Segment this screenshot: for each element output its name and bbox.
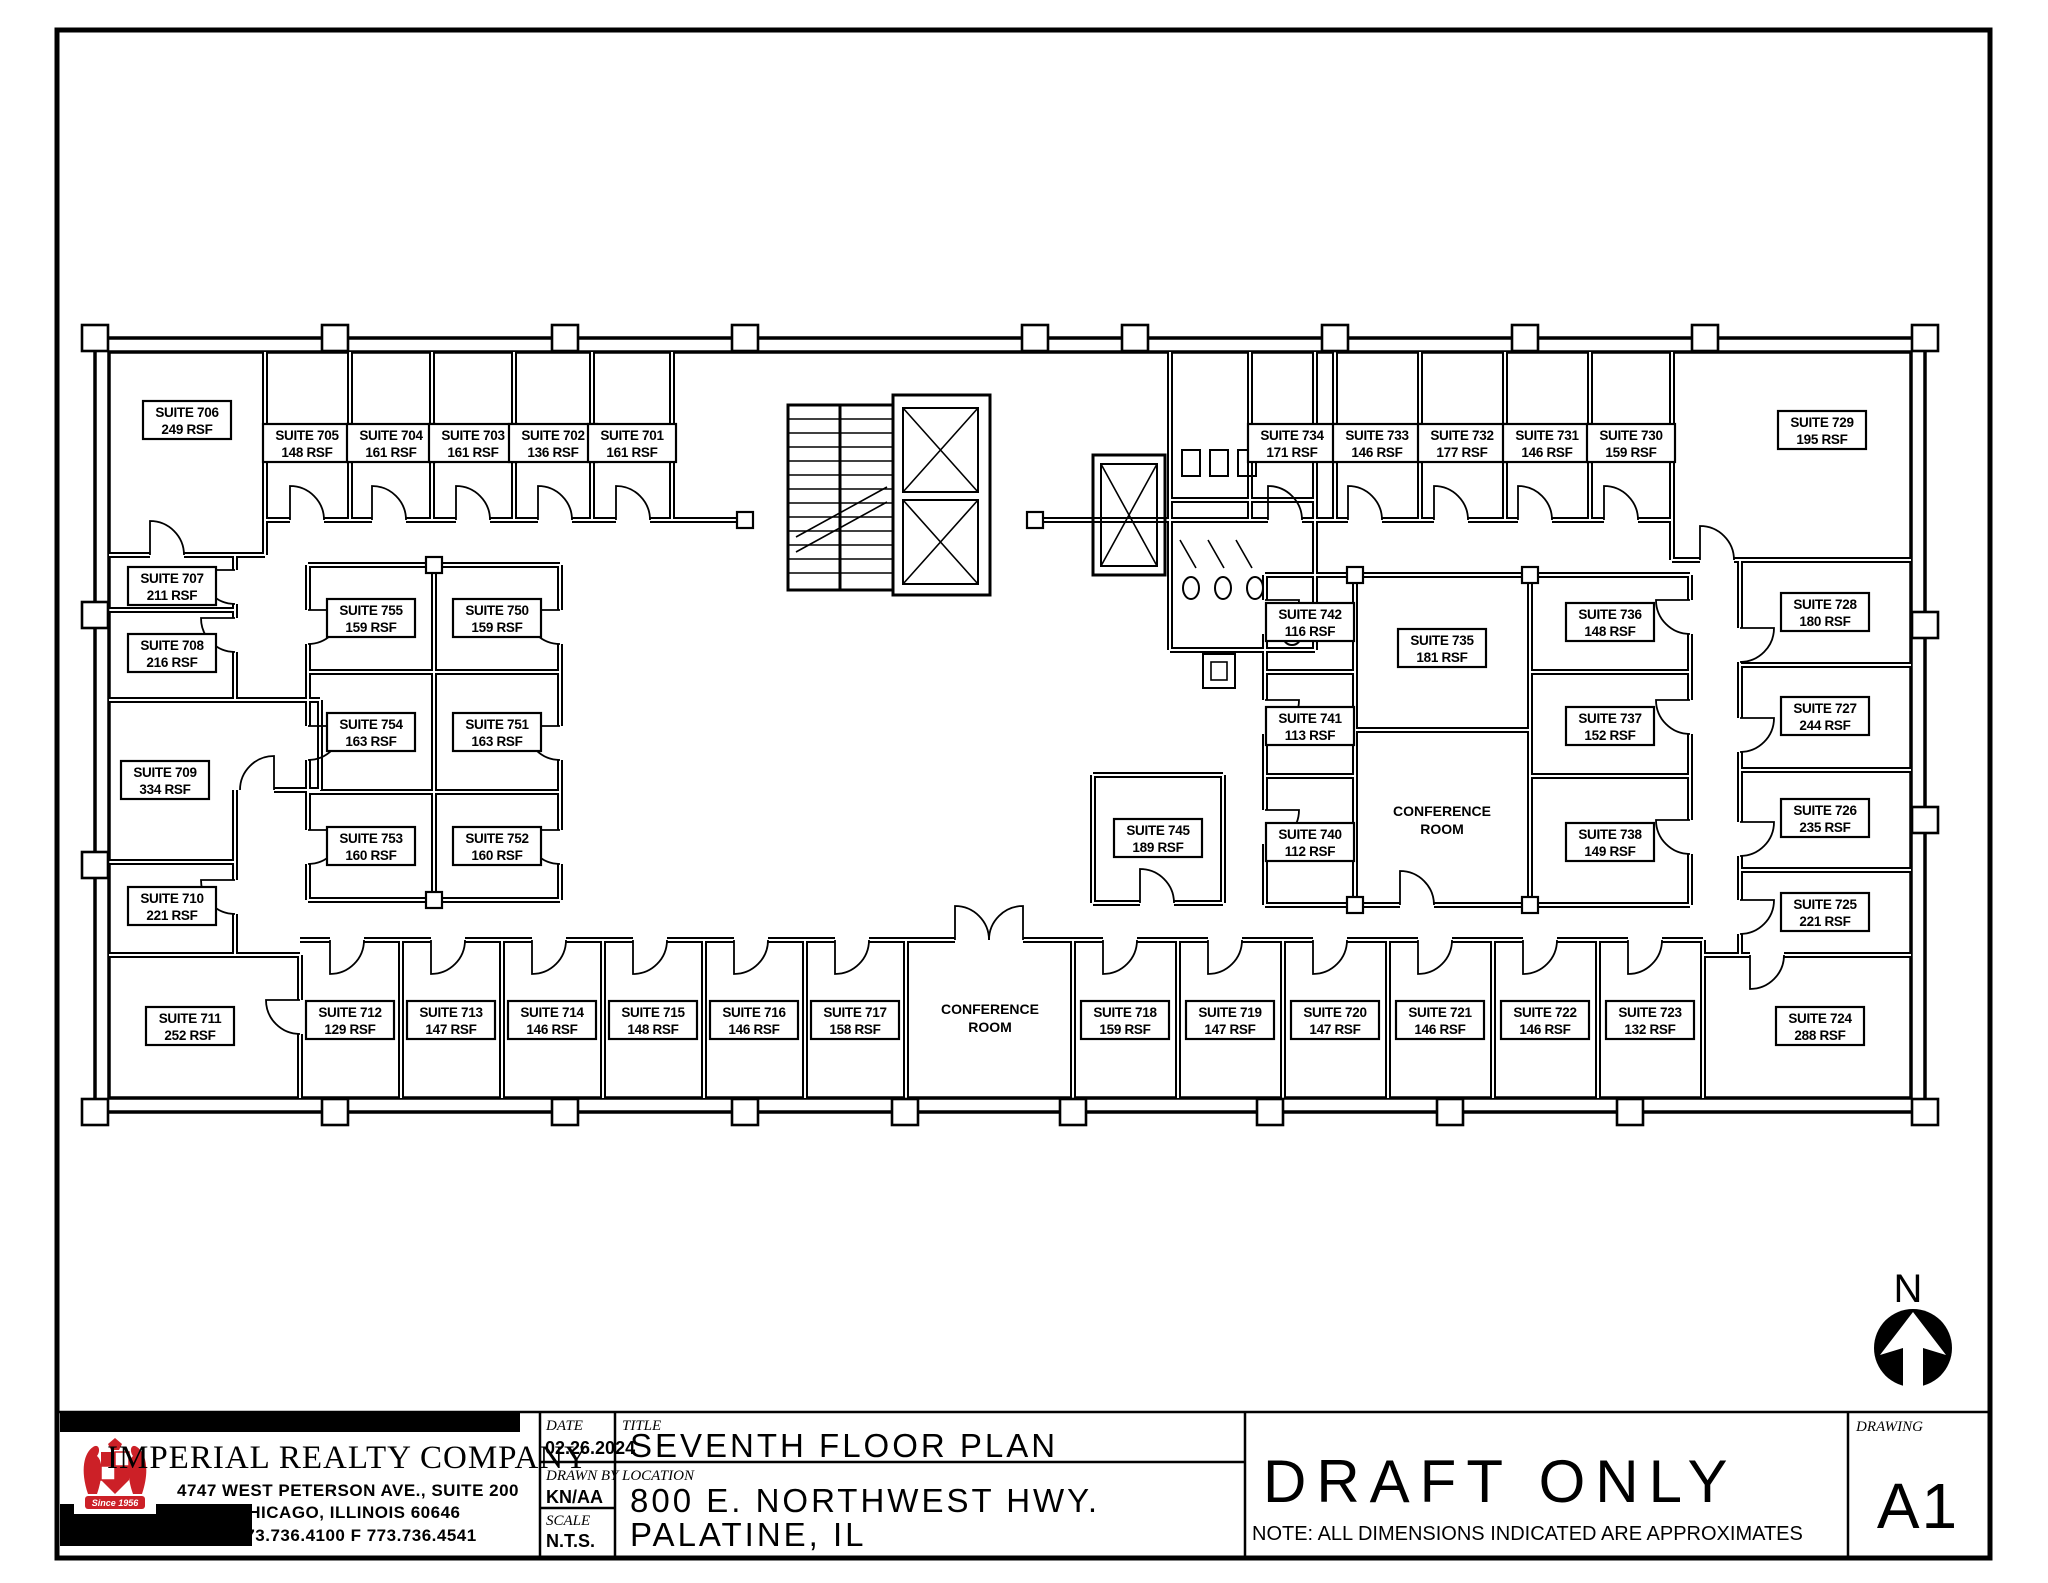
svg-text:SUITE 738: SUITE 738 xyxy=(1578,827,1642,842)
svg-text:SUITE 717: SUITE 717 xyxy=(823,1005,886,1020)
svg-text:159 RSF: 159 RSF xyxy=(1605,445,1656,460)
svg-text:159 RSF: 159 RSF xyxy=(345,620,396,635)
suite-label: SUITE 728180 RSF xyxy=(1781,593,1869,631)
suite-label: SUITE 707211 RSF xyxy=(128,567,216,605)
suite-label: SUITE 755159 RSF xyxy=(327,599,415,637)
svg-text:SUITE 741: SUITE 741 xyxy=(1278,711,1342,726)
conference-room-label: CONFERENCEROOM xyxy=(941,1001,1039,1035)
drawing-number-cell: DRAWING A1 xyxy=(1855,1419,1959,1542)
suite-label: SUITE 712129 RSF xyxy=(306,1001,394,1039)
location-cell: LOCATION 800 E. NORTHWEST HWY. PALATINE,… xyxy=(621,1468,1100,1553)
elevator-bank-icon xyxy=(893,395,990,595)
conference-room-label: CONFERENCEROOM xyxy=(1393,803,1491,837)
svg-text:132 RSF: 132 RSF xyxy=(1624,1022,1675,1037)
scale-label: SCALE xyxy=(546,1513,590,1529)
svg-text:181 RSF: 181 RSF xyxy=(1416,650,1467,665)
svg-text:CONFERENCE: CONFERENCE xyxy=(1393,803,1491,819)
svg-text:SUITE 720: SUITE 720 xyxy=(1303,1005,1366,1020)
floor-plan-sheet: SUITE 706249 RSFSUITE 705148 RSFSUITE 70… xyxy=(0,0,2048,1583)
svg-text:SUITE 732: SUITE 732 xyxy=(1430,428,1493,443)
svg-text:SUITE 737: SUITE 737 xyxy=(1578,711,1641,726)
svg-text:SUITE 752: SUITE 752 xyxy=(465,831,528,846)
svg-text:SUITE 712: SUITE 712 xyxy=(318,1005,381,1020)
svg-text:SUITE 707: SUITE 707 xyxy=(140,571,203,586)
suite-label: SUITE 738149 RSF xyxy=(1566,823,1654,861)
svg-text:161 RSF: 161 RSF xyxy=(606,445,657,460)
svg-text:ROOM: ROOM xyxy=(1420,821,1464,837)
company-address-2: CHICAGO, ILLINOIS 60646 xyxy=(236,1503,461,1522)
suite-label: SUITE 726235 RSF xyxy=(1781,799,1869,837)
svg-text:SUITE 718: SUITE 718 xyxy=(1093,1005,1157,1020)
svg-text:146 RSF: 146 RSF xyxy=(526,1022,577,1037)
suite-label: SUITE 702136 RSF xyxy=(509,424,597,462)
svg-text:159 RSF: 159 RSF xyxy=(1099,1022,1150,1037)
svg-text:SUITE 714: SUITE 714 xyxy=(520,1005,584,1020)
location-line-1: 800 E. NORTHWEST HWY. xyxy=(630,1482,1100,1519)
suite-label: SUITE 722146 RSF xyxy=(1501,1001,1589,1039)
suite-label: SUITE 750159 RSF xyxy=(453,599,541,637)
svg-text:146 RSF: 146 RSF xyxy=(1519,1022,1570,1037)
suite-label: SUITE 729195 RSF xyxy=(1778,411,1866,449)
svg-text:235 RSF: 235 RSF xyxy=(1799,820,1850,835)
suite-label: SUITE 737152 RSF xyxy=(1566,707,1654,745)
svg-text:SUITE 709: SUITE 709 xyxy=(133,765,196,780)
svg-text:SUITE 705: SUITE 705 xyxy=(275,428,339,443)
svg-text:SUITE 725: SUITE 725 xyxy=(1793,897,1857,912)
suite-label: SUITE 703161 RSF xyxy=(429,424,517,462)
suite-label: SUITE 751163 RSF xyxy=(453,713,541,751)
svg-text:SUITE 719: SUITE 719 xyxy=(1198,1005,1261,1020)
svg-text:148 RSF: 148 RSF xyxy=(281,445,332,460)
svg-text:160 RSF: 160 RSF xyxy=(345,848,396,863)
svg-text:SUITE 716: SUITE 716 xyxy=(722,1005,786,1020)
svg-text:148 RSF: 148 RSF xyxy=(627,1022,678,1037)
svg-text:SUITE 702: SUITE 702 xyxy=(521,428,584,443)
suite-label: SUITE 735181 RSF xyxy=(1398,629,1486,667)
svg-text:SUITE 708: SUITE 708 xyxy=(140,638,204,653)
svg-text:SUITE 722: SUITE 722 xyxy=(1513,1005,1576,1020)
suite-label: SUITE 708216 RSF xyxy=(128,634,216,672)
suite-labels: SUITE 706249 RSFSUITE 705148 RSFSUITE 70… xyxy=(121,401,1869,1045)
north-arrow-icon: N xyxy=(1874,1267,1952,1387)
svg-text:249 RSF: 249 RSF xyxy=(161,422,212,437)
suite-label: SUITE 740112 RSF xyxy=(1266,823,1354,861)
elevator-icon xyxy=(1093,455,1165,575)
svg-text:146 RSF: 146 RSF xyxy=(1521,445,1572,460)
suite-label: SUITE 721146 RSF xyxy=(1396,1001,1484,1039)
svg-text:SUITE 703: SUITE 703 xyxy=(441,428,505,443)
suite-label: SUITE 704161 RSF xyxy=(347,424,435,462)
svg-text:SUITE 734: SUITE 734 xyxy=(1260,428,1324,443)
stamp-cell: DRAFT ONLY NOTE: ALL DIMENSIONS INDICATE… xyxy=(1252,1448,1803,1545)
svg-text:221 RSF: 221 RSF xyxy=(146,908,197,923)
suite-label: SUITE 710221 RSF xyxy=(128,887,216,925)
svg-text:SUITE 753: SUITE 753 xyxy=(339,831,403,846)
svg-text:146 RSF: 146 RSF xyxy=(1414,1022,1465,1037)
svg-text:SUITE 730: SUITE 730 xyxy=(1599,428,1662,443)
svg-text:112 RSF: 112 RSF xyxy=(1285,844,1335,859)
suite-label: SUITE 715148 RSF xyxy=(609,1001,697,1039)
svg-text:216 RSF: 216 RSF xyxy=(146,655,197,670)
svg-text:189 RSF: 189 RSF xyxy=(1132,840,1183,855)
dimensions-note: NOTE: ALL DIMENSIONS INDICATED ARE APPRO… xyxy=(1252,1523,1803,1545)
title-block: Since 1956 IMPERIAL REALTY COMPANY 4747 … xyxy=(59,1412,1988,1556)
drawn-by-label: DRAWN BY xyxy=(545,1468,620,1484)
scale-value: N.T.S. xyxy=(546,1531,595,1551)
company-name: IMPERIAL REALTY COMPANY xyxy=(107,1440,589,1476)
drawn-by-value: KN/AA xyxy=(546,1487,603,1507)
svg-text:SUITE 706: SUITE 706 xyxy=(155,405,219,420)
svg-text:SUITE 742: SUITE 742 xyxy=(1278,607,1341,622)
suite-label: SUITE 753160 RSF xyxy=(327,827,415,865)
svg-text:SUITE 723: SUITE 723 xyxy=(1618,1005,1682,1020)
svg-text:159 RSF: 159 RSF xyxy=(471,620,522,635)
svg-text:SUITE 735: SUITE 735 xyxy=(1410,633,1474,648)
svg-text:SUITE 731: SUITE 731 xyxy=(1515,428,1579,443)
title-cell: TITLE SEVENTH FLOOR PLAN xyxy=(622,1418,1058,1464)
drawing-label: DRAWING xyxy=(1855,1419,1923,1435)
svg-text:ROOM: ROOM xyxy=(968,1019,1012,1035)
logo-banner: Since 1956 xyxy=(92,1498,140,1508)
suite-label: SUITE 716146 RSF xyxy=(710,1001,798,1039)
suite-label: SUITE 706249 RSF xyxy=(143,401,231,439)
suite-label: SUITE 742116 RSF xyxy=(1266,603,1354,641)
floor-plan: SUITE 706249 RSFSUITE 705148 RSFSUITE 70… xyxy=(82,325,1938,1125)
company-block: Since 1956 IMPERIAL REALTY COMPANY 4747 … xyxy=(60,1412,589,1546)
suite-label: SUITE 713147 RSF xyxy=(407,1001,495,1039)
svg-text:177 RSF: 177 RSF xyxy=(1436,445,1487,460)
svg-text:161 RSF: 161 RSF xyxy=(447,445,498,460)
suite-label: SUITE 732177 RSF xyxy=(1418,424,1506,462)
svg-text:SUITE 750: SUITE 750 xyxy=(465,603,528,618)
svg-text:171 RSF: 171 RSF xyxy=(1266,445,1317,460)
suite-label: SUITE 725221 RSF xyxy=(1781,893,1869,931)
svg-text:334 RSF: 334 RSF xyxy=(139,782,190,797)
svg-text:195 RSF: 195 RSF xyxy=(1796,432,1847,447)
suite-label: SUITE 752160 RSF xyxy=(453,827,541,865)
svg-text:158 RSF: 158 RSF xyxy=(829,1022,880,1037)
svg-text:163 RSF: 163 RSF xyxy=(471,734,522,749)
svg-text:180 RSF: 180 RSF xyxy=(1799,614,1850,629)
suite-label: SUITE 733146 RSF xyxy=(1333,424,1421,462)
suite-label: SUITE 724288 RSF xyxy=(1776,1007,1864,1045)
svg-text:244 RSF: 244 RSF xyxy=(1799,718,1850,733)
svg-text:116 RSF: 116 RSF xyxy=(1285,624,1335,639)
svg-text:146 RSF: 146 RSF xyxy=(1351,445,1402,460)
svg-text:SUITE 728: SUITE 728 xyxy=(1793,597,1857,612)
company-phone: T 773.736.4100 F 773.736.4541 xyxy=(219,1526,476,1545)
draft-stamp: DRAFT ONLY xyxy=(1263,1448,1738,1515)
suite-label: SUITE 734171 RSF xyxy=(1248,424,1336,462)
svg-text:SUITE 754: SUITE 754 xyxy=(339,717,403,732)
suite-label: SUITE 741113 RSF xyxy=(1266,707,1354,745)
svg-text:161 RSF: 161 RSF xyxy=(365,445,416,460)
svg-text:SUITE 755: SUITE 755 xyxy=(339,603,403,618)
svg-text:SUITE 736: SUITE 736 xyxy=(1578,607,1642,622)
svg-text:149 RSF: 149 RSF xyxy=(1584,844,1635,859)
drawn-by-cell: DRAWN BY KN/AA xyxy=(545,1468,620,1507)
svg-text:SUITE 713: SUITE 713 xyxy=(419,1005,483,1020)
svg-text:SUITE 733: SUITE 733 xyxy=(1345,428,1409,443)
date-label: DATE xyxy=(545,1418,583,1434)
svg-text:288 RSF: 288 RSF xyxy=(1794,1028,1845,1043)
svg-text:252 RSF: 252 RSF xyxy=(164,1028,215,1043)
suite-label: SUITE 736148 RSF xyxy=(1566,603,1654,641)
svg-text:SUITE 715: SUITE 715 xyxy=(621,1005,685,1020)
svg-text:147 RSF: 147 RSF xyxy=(1204,1022,1255,1037)
svg-text:148 RSF: 148 RSF xyxy=(1584,624,1635,639)
suite-label: SUITE 709334 RSF xyxy=(121,761,209,799)
svg-text:129 RSF: 129 RSF xyxy=(324,1022,375,1037)
suite-label: SUITE 714146 RSF xyxy=(508,1001,596,1039)
suite-label: SUITE 705148 RSF xyxy=(263,424,351,462)
company-address-1: 4747 WEST PETERSON AVE., SUITE 200 xyxy=(177,1481,519,1500)
suite-label: SUITE 701161 RSF xyxy=(588,424,676,462)
svg-text:SUITE 745: SUITE 745 xyxy=(1126,823,1190,838)
svg-text:SUITE 710: SUITE 710 xyxy=(140,891,203,906)
suite-label: SUITE 727244 RSF xyxy=(1781,697,1869,735)
svg-text:SUITE 726: SUITE 726 xyxy=(1793,803,1857,818)
suite-label: SUITE 745189 RSF xyxy=(1114,819,1202,857)
svg-text:160 RSF: 160 RSF xyxy=(471,848,522,863)
location-line-2: PALATINE, IL xyxy=(630,1516,867,1553)
svg-text:152 RSF: 152 RSF xyxy=(1584,728,1635,743)
suite-label: SUITE 730159 RSF xyxy=(1587,424,1675,462)
date-value: 02.26.2024 xyxy=(545,1438,635,1458)
suite-label: SUITE 720147 RSF xyxy=(1291,1001,1379,1039)
svg-text:146 RSF: 146 RSF xyxy=(728,1022,779,1037)
svg-text:147 RSF: 147 RSF xyxy=(1309,1022,1360,1037)
suite-label: SUITE 711252 RSF xyxy=(146,1007,234,1045)
stairs-icon xyxy=(788,405,893,590)
svg-text:SUITE 711: SUITE 711 xyxy=(159,1011,222,1026)
svg-text:SUITE 751: SUITE 751 xyxy=(465,717,529,732)
suite-label: SUITE 717158 RSF xyxy=(811,1001,899,1039)
svg-text:113 RSF: 113 RSF xyxy=(1285,728,1335,743)
title-value: SEVENTH FLOOR PLAN xyxy=(630,1427,1058,1464)
svg-text:SUITE 724: SUITE 724 xyxy=(1788,1011,1852,1026)
svg-text:136 RSF: 136 RSF xyxy=(527,445,578,460)
north-label: N xyxy=(1894,1267,1923,1311)
suite-label: SUITE 754163 RSF xyxy=(327,713,415,751)
svg-text:211 RSF: 211 RSF xyxy=(147,588,197,603)
svg-text:SUITE 704: SUITE 704 xyxy=(359,428,423,443)
svg-text:SUITE 701: SUITE 701 xyxy=(600,428,664,443)
suite-label: SUITE 719147 RSF xyxy=(1186,1001,1274,1039)
svg-text:SUITE 729: SUITE 729 xyxy=(1790,415,1853,430)
suite-label: SUITE 723132 RSF xyxy=(1606,1001,1694,1039)
suite-label: SUITE 718159 RSF xyxy=(1081,1001,1169,1039)
drawing-number: A1 xyxy=(1877,1470,1959,1542)
svg-text:SUITE 727: SUITE 727 xyxy=(1793,701,1856,716)
scale-cell: SCALE N.T.S. xyxy=(546,1513,595,1551)
svg-text:CONFERENCE: CONFERENCE xyxy=(941,1001,1039,1017)
svg-text:SUITE 740: SUITE 740 xyxy=(1278,827,1341,842)
svg-text:SUITE 721: SUITE 721 xyxy=(1408,1005,1472,1020)
svg-text:221 RSF: 221 RSF xyxy=(1799,914,1850,929)
svg-text:147 RSF: 147 RSF xyxy=(425,1022,476,1037)
suite-label: SUITE 731146 RSF xyxy=(1503,424,1591,462)
svg-text:163 RSF: 163 RSF xyxy=(345,734,396,749)
